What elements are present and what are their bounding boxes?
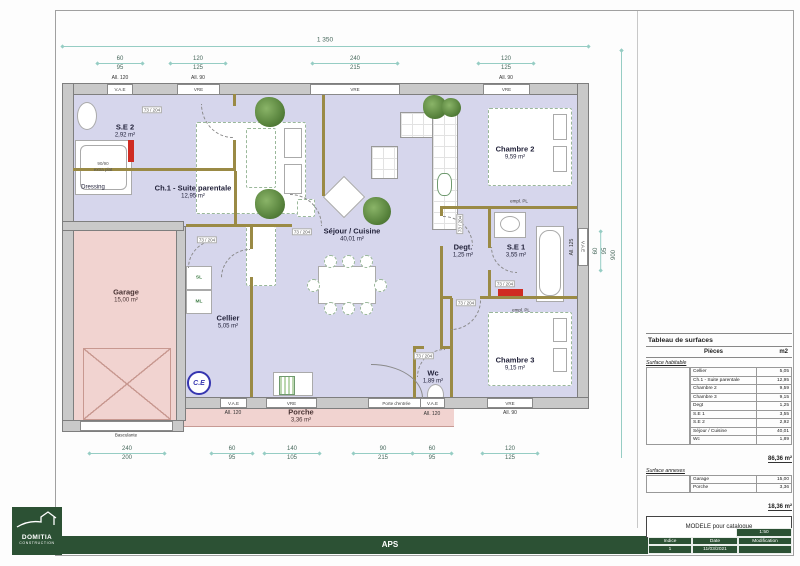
dim-top-1: 120125 [178, 56, 218, 72]
partition-wc-top-a [416, 346, 424, 349]
table-row: Chambre 39,15 [690, 394, 792, 403]
window-top-vre-1: VRE [177, 84, 220, 95]
partition-se1-left-b [488, 270, 491, 299]
partition-se1-left-a [488, 206, 491, 248]
allege-label: All. 120 [424, 411, 441, 417]
door-size-label: 73 / 204 [197, 236, 217, 243]
room-label-cellier: Cellier5,05 m² [217, 314, 240, 329]
revision-header-row: Indice Date Modification [648, 537, 792, 545]
window-label: VRE [194, 87, 203, 92]
surface-annexes-total: 18,36 m² [646, 493, 792, 514]
wall-left [62, 83, 74, 432]
table-row: Chambre 29,59 [690, 385, 792, 394]
desk-chair [279, 376, 295, 395]
allege-label: All. 90 [503, 410, 517, 416]
surface-annexes-label: Surface annexes [646, 466, 792, 475]
window-label: VRE [505, 401, 514, 406]
dim-line-top [62, 46, 589, 47]
dim-bottom-2: 140105 [272, 446, 312, 462]
window-label: V.A.E [228, 401, 239, 406]
surface-table: Tableau de surfaces Pièces m2 Surface ha… [646, 333, 792, 538]
surface-table-col-unit: m2 [779, 349, 788, 355]
pillow [553, 146, 567, 172]
table-row: Garage15,00 [690, 475, 792, 485]
dim-bottom-5: 120125 [490, 446, 530, 462]
dim-bottom-1: 6095 [219, 446, 245, 462]
window-top-vre-2: VRE [310, 84, 400, 95]
dim-bottom-3: 90215 [361, 446, 405, 462]
allege-label: All. 120 [225, 410, 242, 416]
drawing-sheet: V.A.E VRE VRE VRE V.A.E VRE Porte d'entr… [0, 0, 800, 566]
radiator-se1 [498, 289, 523, 296]
table-row: Séjour / Cuisine40,01 [690, 428, 792, 437]
table-row: S.E 13,55 [690, 411, 792, 420]
partition-cellier-right-a [250, 227, 253, 249]
window-right-vae: V.A.E [578, 228, 588, 266]
water-heater: C.E [187, 371, 211, 395]
door-size-label: 73 / 204 [495, 280, 515, 287]
pillow [553, 114, 567, 140]
dining-chair [324, 302, 337, 315]
dim-overall-width: 1 350 [317, 37, 333, 44]
washbasin-se1-bowl [500, 216, 520, 232]
shower-size-line2: extra plat [94, 167, 113, 173]
dining-chair [307, 279, 320, 292]
partition-ch1-right [322, 94, 325, 196]
window-top-vae: V.A.E [107, 84, 133, 95]
washbasin-se2 [77, 102, 97, 130]
allege-label: All. 125 [569, 239, 575, 256]
dim-top-3: 120125 [486, 56, 526, 72]
window-bottom-vre-ch3: VRE [487, 398, 533, 408]
partition-se2-right-a [233, 94, 236, 106]
entry-door: Porte d'entrée [368, 398, 425, 408]
partition-ch1-bottom [186, 224, 292, 227]
pillow [553, 318, 567, 342]
dining-chair [360, 255, 373, 268]
revision-date-value: 11/03/2021 [692, 545, 738, 554]
dining-chair [324, 255, 337, 268]
porch-edge-line [184, 426, 454, 427]
dim-bottom-4: 6095 [420, 446, 444, 462]
window-label: V.A.E [427, 401, 438, 406]
surface-habitable-label: Surface habitable [646, 357, 792, 367]
room-label-sejour-cuisine: Séjour / Cuisine40,01 m² [324, 227, 381, 242]
revision-col-indice: Indice [648, 537, 692, 545]
allege-label: All. 90 [191, 75, 205, 81]
room-label-se2: S.E 22,92 m² [115, 123, 135, 138]
kitchen-sink [437, 173, 452, 196]
room-label-ch1: Ch.1 - Suite parentale12,95 m² [155, 184, 232, 199]
bathtub-inner [539, 230, 561, 296]
pillow [284, 164, 302, 194]
garage-door [80, 421, 173, 431]
table-row: Degt1,25 [690, 402, 792, 411]
room-label-se1: S.E 13,55 m² [506, 243, 526, 258]
shower-size-label: 90/90 extra plat [94, 161, 113, 173]
allege-label: All. 90 [499, 75, 513, 81]
window-label: VRE [502, 87, 511, 92]
surface-table-header: Pièces m2 [646, 346, 792, 357]
window-top-vre-3: VRE [483, 84, 530, 95]
dim-bottom-0: 240200 [97, 446, 157, 462]
window-label: V.A.E [581, 241, 586, 252]
door-size-label: 73 / 204 [456, 214, 463, 234]
plant [255, 189, 285, 219]
revision-col-date: Date [692, 537, 738, 545]
pillow [553, 348, 567, 372]
garage-door-zone [83, 348, 171, 420]
partition-se1-bottom-b [480, 296, 577, 299]
revision-col-modification: Modification [738, 537, 792, 545]
entry-door-label: Porte d'entrée [382, 401, 410, 406]
dim-line-right [621, 50, 622, 458]
room-label-dressing: Dressing [81, 185, 105, 192]
partition-dressing-right [234, 171, 237, 224]
surface-habitable-grid: Cellier5,05 Ch.1 - Suite parentale12,95 … [646, 367, 792, 445]
wall-garage-right [176, 226, 186, 421]
frame-divider [637, 11, 638, 528]
dim-top-2: 240215 [320, 56, 390, 72]
room-label-ch2: Chambre 29,59 m² [496, 145, 535, 160]
surface-table-spacer [646, 367, 690, 445]
allege-label: All. 120 [112, 75, 129, 81]
wall-garage-top [62, 221, 184, 231]
closet-label: empl. PL [510, 199, 528, 204]
dim-top-0: 6095 [105, 56, 135, 72]
dining-chair [360, 302, 373, 315]
window-bottom-vae-cellier: V.A.E [220, 398, 247, 408]
partition-ch2-bottom [443, 206, 577, 209]
table-row: Porche3,36 [690, 484, 792, 493]
surface-annexes-grid: Garage15,00 Porche3,36 [646, 475, 792, 493]
door-size-label: 73 / 204 [414, 352, 434, 359]
scale-cell: 1:50 [736, 528, 792, 537]
room-label-degt: Degt.1,25 m² [453, 243, 473, 258]
window-label: V.A.E [114, 87, 125, 92]
window-label: VRE [350, 87, 359, 92]
room-label-ch3: Chambre 39,15 m² [496, 356, 535, 371]
door-size-label: 73 / 204 [456, 299, 476, 306]
partition-cellier-right-b [250, 277, 253, 397]
dining-chair [342, 255, 355, 268]
plant [255, 97, 285, 127]
table-row: S.E 22,92 [690, 419, 792, 428]
dryer-label: ML [196, 300, 203, 305]
surface-habitable-total: 86,36 m² [646, 445, 792, 466]
house-logo-icon [15, 509, 59, 529]
kitchen-island [371, 146, 398, 179]
towel-radiator-se2 [128, 140, 134, 162]
phase-label: APS [382, 540, 398, 549]
window-bottom-vae-wc: V.A.E [420, 398, 445, 408]
window-label: VRE [287, 401, 296, 406]
table-row: Cellier5,05 [690, 367, 792, 377]
door-size-label: 73 / 204 [142, 106, 162, 113]
surface-table-col-pieces: Pièces [704, 349, 723, 355]
washer-label: SL [196, 276, 202, 281]
revision-indice-value: 1 [648, 545, 692, 554]
sofa-section [246, 128, 276, 188]
partition-se2-right-b [233, 140, 236, 171]
kitchen-counter [432, 112, 458, 230]
dining-chair [374, 279, 387, 292]
door-size-label: 73 / 204 [292, 228, 312, 235]
revision-modification-value [738, 545, 792, 554]
garage-door-type-label: Basculante [115, 433, 137, 438]
table-row: Wc1,89 [690, 436, 792, 445]
surface-table-spacer [646, 475, 690, 493]
company-name: DOMITIA [12, 534, 62, 541]
dining-table [318, 266, 376, 304]
company-logo: DOMITIA CONSTRUCTION [12, 507, 62, 555]
revision-value-row: 1 11/03/2021 [648, 545, 792, 554]
plant [363, 197, 391, 225]
dim-overall-height: 900 [611, 250, 617, 260]
room-label-porche: Porche3,36 m² [288, 408, 313, 423]
company-subtitle: CONSTRUCTION [12, 541, 62, 545]
dim-right-0: 6095 [593, 239, 609, 263]
plant [442, 98, 461, 117]
table-row: Ch.1 - Suite parentale12,95 [690, 377, 792, 386]
room-label-garage: Garage15,00 m² [113, 288, 139, 303]
room-label-wc: Wc1,89 m² [423, 369, 443, 384]
pillow [284, 128, 302, 158]
surface-table-title: Tableau de surfaces [646, 333, 792, 346]
dining-chair [342, 302, 355, 315]
closet-label: empl. PL [512, 308, 530, 313]
